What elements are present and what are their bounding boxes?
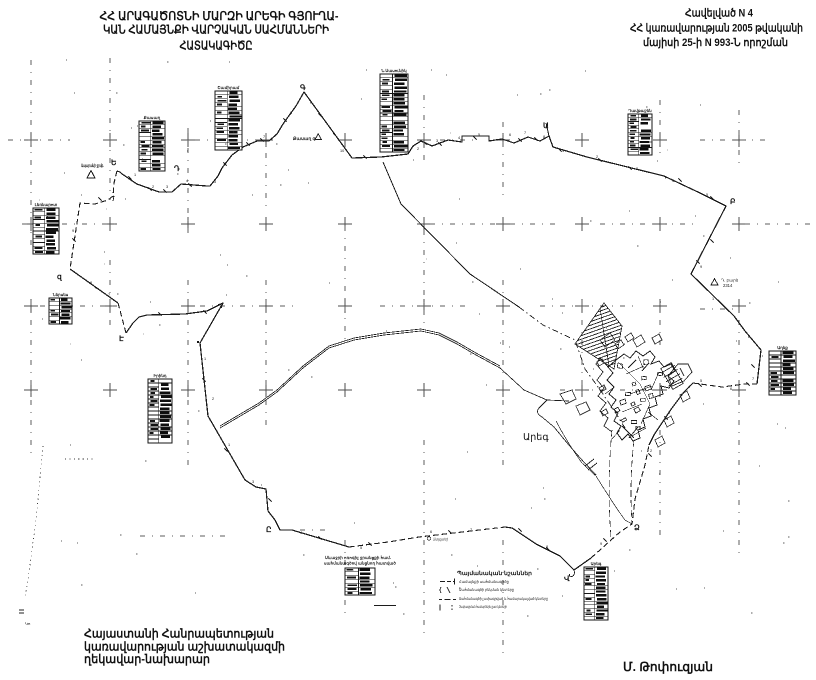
svg-text:3: 3 (636, 167, 638, 171)
svg-text:2: 2 (212, 397, 214, 401)
svg-text:ՀՀ կառավարության 2005 թվականի: ՀՀ կառավարության 2005 թվականի (630, 23, 803, 35)
svg-text:ՀԱՏԱԿԱԳԻԾԸ: ՀԱՏԱԿԱԳԻԾԸ (180, 38, 253, 52)
svg-text:7: 7 (108, 293, 110, 297)
svg-text:Համայնքի սահմանագիծը: Համայնքի սահմանագիծը (459, 579, 509, 584)
svg-text:5: 5 (360, 546, 362, 550)
svg-text:Քասաղ: Քասաղ (144, 115, 161, 120)
svg-text:Արեգ: Արեգ (591, 561, 602, 566)
svg-text:9: 9 (600, 542, 602, 546)
svg-text:ղեկավար-նախարար: ղեկավար-նախարար (84, 652, 210, 666)
svg-text:Պայմանական նշաններ: Պայմանական նշաններ (457, 570, 532, 577)
svg-text:Շամիրամ: Շամիրամ (218, 85, 240, 90)
svg-text:Սահմանագծի բեկման կետերը: Սահմանագծի բեկման կետերը (459, 587, 514, 592)
svg-text:7: 7 (752, 377, 754, 381)
svg-text:Ներսես: Ներսես (52, 292, 69, 297)
svg-text:Ն.Սասունիկ: Ն.Սասունիկ (380, 68, 407, 73)
svg-text:Գ: Գ (300, 83, 306, 92)
svg-text:Լ.Քաղաքատեղի: Լ.Քաղաքատեղի (433, 537, 448, 542)
svg-text:Աղձք: Աղձք (777, 345, 788, 350)
svg-text:Ե: Ե (111, 158, 117, 167)
svg-text:Արեգ: Արեգ (523, 432, 549, 443)
svg-text:3: 3 (166, 185, 168, 189)
svg-text:1: 1 (228, 443, 230, 447)
svg-text:2: 2 (152, 185, 154, 189)
svg-text:2: 2 (417, 147, 419, 151)
svg-text:Սահմանագծի չափագրված և համարակ: Սահմանագծի չափագրված և համարակալված կետե… (459, 596, 548, 601)
svg-text:5: 5 (478, 133, 480, 137)
svg-text:4: 4 (186, 179, 188, 183)
svg-text:Լեռնարոտ: Լեռնարոտ (35, 202, 58, 207)
svg-text:ԿԱՆ ՀԱՄԱՅՆՔԻ ՎԱՐՉԱԿԱՆ ՍԱՀՄԱՆՆԵ: ԿԱՆ ՀԱՄԱՅՆՔԻ ՎԱՐՉԱԿԱՆ ՍԱՀՄԱՆՆԵՐԻ (103, 23, 330, 37)
svg-text:7: 7 (263, 135, 265, 139)
svg-text:Բ: Բ (730, 197, 736, 206)
svg-text:7: 7 (470, 528, 472, 532)
svg-text:3: 3 (252, 480, 254, 484)
svg-text:5: 5 (214, 180, 216, 184)
svg-text:2314: 2314 (723, 283, 733, 288)
svg-text:2: 2 (596, 155, 598, 159)
svg-text:1: 1 (134, 173, 136, 177)
svg-text:8: 8 (543, 135, 545, 139)
svg-text:Ա: Ա (543, 121, 549, 130)
svg-text:Կո: Կո (25, 621, 31, 626)
svg-text:9: 9 (72, 229, 74, 233)
svg-text:5: 5 (700, 379, 702, 383)
svg-text:1: 1 (712, 297, 714, 301)
svg-text:8: 8 (290, 111, 292, 115)
svg-text:4: 4 (688, 385, 690, 389)
svg-text:4: 4 (300, 531, 302, 535)
svg-text:8: 8 (90, 281, 92, 285)
svg-text:3: 3 (436, 139, 438, 143)
svg-text:մայիսի 25-ի N 993-Ն որոշման: մայիսի 25-ի N 993-Ն որոշման (643, 37, 788, 49)
svg-text:Ձ: Ձ (634, 523, 640, 532)
svg-text:Դավթաշեն: Դավթաշեն (628, 108, 652, 113)
svg-text:Հավելված N 4: Հավելված N 4 (685, 8, 754, 20)
svg-text:4: 4 (458, 136, 460, 140)
svg-text:Ը: Ը (266, 525, 272, 534)
svg-text:Հայաստանի Հանրապետության: Հայաստանի Հանրապետության (84, 627, 274, 641)
svg-text:6: 6 (730, 387, 732, 391)
svg-text:Դ. բարձ: Դ. բարձ (721, 278, 739, 283)
svg-text:Իրինդ: Իրինդ (153, 373, 166, 378)
svg-text:4: 4 (672, 179, 674, 183)
svg-text:10: 10 (340, 149, 344, 153)
svg-text:Դ: Դ (174, 164, 180, 173)
svg-text:7: 7 (524, 131, 526, 135)
svg-text:Վ: Վ (564, 574, 570, 583)
svg-text:2: 2 (650, 449, 652, 453)
svg-text:8: 8 (748, 335, 750, 339)
svg-text:9: 9 (700, 265, 702, 269)
svg-text:9: 9 (310, 101, 312, 105)
svg-text:5: 5 (706, 193, 708, 197)
svg-text:Չափագրման համարներն ըստ կետերի: Չափագրման համարներն ըստ կետերի (459, 604, 507, 609)
svg-text:Մ. Թոփուզյան: Մ. Թոփուզյան (623, 660, 713, 674)
svg-text:6: 6 (509, 133, 511, 137)
svg-text:6: 6 (430, 530, 432, 534)
svg-text:1: 1 (204, 357, 206, 361)
svg-text:Ապարանի ջրմբ.: Ապարանի ջրմբ. (81, 163, 104, 168)
svg-text:3: 3 (668, 411, 670, 415)
svg-text:ՀՀ ԱՐԱԳԱԾՈՏՆԻ ՄԱՐԶԻ ԱՐԵԳԻ ԳՅՈՒ: ՀՀ ԱՐԱԳԱԾՈՏՆԻ ՄԱՐԶԻ ԱՐԵԳԻ ԳՅՈՒՂԱ- (100, 9, 339, 23)
svg-text:1: 1 (562, 149, 564, 153)
